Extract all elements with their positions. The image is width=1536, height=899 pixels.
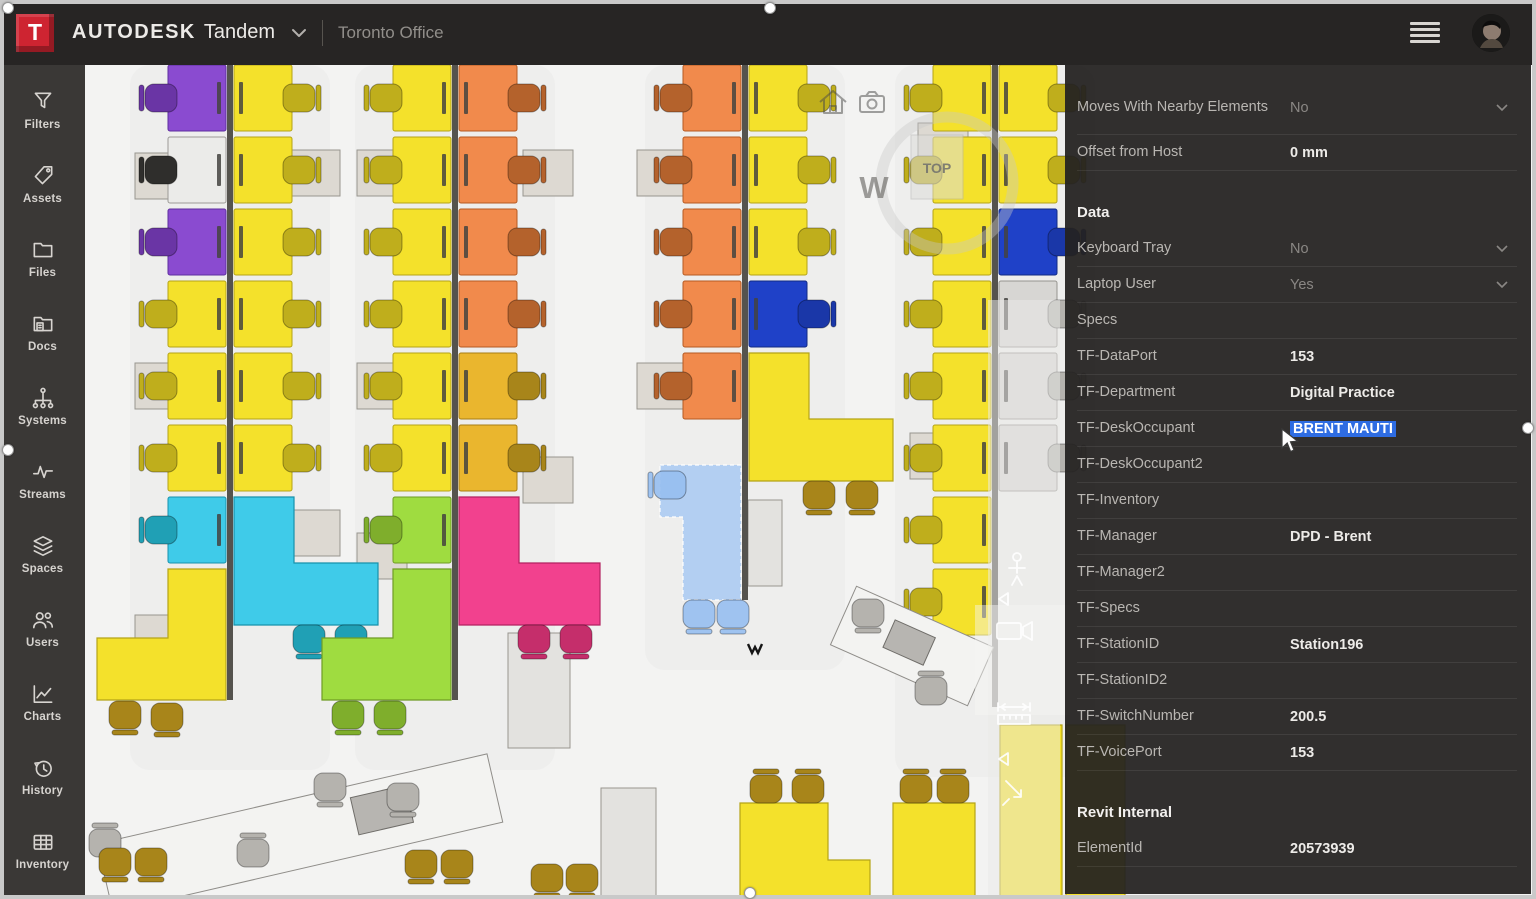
- sidebar-item-label: Docs: [28, 341, 57, 353]
- property-label: Specs: [1077, 312, 1277, 329]
- sidebar-item-spaces[interactable]: Spaces: [0, 517, 85, 591]
- property-value[interactable]: BRENT MAUTI: [1277, 421, 1517, 437]
- funnel-icon: [30, 89, 56, 115]
- property-row: Moves With Nearby ElementsNo: [1077, 81, 1517, 135]
- chair: [846, 481, 878, 515]
- resize-handle[interactable]: [2, 2, 14, 14]
- chair: [852, 599, 884, 633]
- chair: [792, 769, 824, 803]
- property-value[interactable]: 153: [1277, 349, 1517, 365]
- chair: [237, 833, 269, 867]
- sidebar-item-filters[interactable]: Filters: [0, 73, 85, 147]
- property-label: TF-DeskOccupant: [1077, 420, 1277, 437]
- chair: [109, 701, 141, 735]
- chair: [717, 600, 749, 634]
- facility-name[interactable]: Toronto Office: [338, 23, 444, 43]
- streams-icon: [30, 459, 56, 485]
- cabinet: [601, 788, 656, 899]
- section-header: Revit Internal: [1077, 797, 1517, 827]
- property-value[interactable]: No: [1277, 100, 1487, 116]
- sidebar-item-label: Users: [26, 637, 59, 649]
- property-label: TF-Department: [1077, 384, 1277, 401]
- history-icon: [30, 755, 56, 781]
- avatar[interactable]: [1472, 14, 1510, 52]
- property-label: TF-Manager2: [1077, 564, 1277, 581]
- chair: [387, 783, 419, 817]
- property-row: Keyboard TrayNo: [1077, 231, 1517, 267]
- folder-icon: [30, 237, 56, 263]
- sidebar-item-users[interactable]: Users: [0, 591, 85, 665]
- chair: [518, 625, 550, 659]
- property-row: TF-Specs: [1077, 591, 1517, 627]
- property-value[interactable]: 20573939: [1277, 841, 1517, 857]
- resize-handle[interactable]: [744, 887, 756, 899]
- property-label: Offset from Host: [1077, 144, 1277, 161]
- sidebar-item-label: Systems: [18, 415, 67, 427]
- chair: [937, 769, 969, 803]
- property-row: TF-DepartmentDigital Practice: [1077, 375, 1517, 411]
- app-window: T AUTODESK Tandem Toronto Office Filters…: [0, 0, 1536, 899]
- chevron-down-icon[interactable]: [1487, 104, 1517, 112]
- chevron-down-icon[interactable]: [291, 28, 307, 38]
- chevron-down-icon[interactable]: [1487, 281, 1517, 289]
- resize-handle[interactable]: [2, 444, 14, 456]
- property-label: TF-Specs: [1077, 600, 1277, 617]
- sidebar: FiltersAssetsFilesDocsSystemsStreamsSpac…: [0, 65, 85, 899]
- sidebar-item-label: Streams: [19, 489, 66, 501]
- sidebar-item-systems[interactable]: Systems: [0, 369, 85, 443]
- brand-tandem: Tandem: [204, 21, 275, 44]
- tag-icon: [30, 163, 56, 189]
- property-label: ElementId: [1077, 840, 1277, 857]
- chair: [314, 773, 346, 807]
- sidebar-item-label: Filters: [25, 119, 61, 131]
- cabinet: [748, 500, 782, 586]
- sidebar-item-label: Assets: [23, 193, 62, 205]
- property-label: TF-StationID: [1077, 636, 1277, 653]
- chair: [566, 864, 598, 898]
- divider: [322, 20, 323, 46]
- desk-divider: [452, 65, 458, 700]
- property-row: TF-VoicePort153: [1077, 735, 1517, 771]
- chair: [374, 701, 406, 735]
- chair: [99, 848, 131, 882]
- sidebar-item-inventory[interactable]: Inventory: [0, 813, 85, 887]
- property-value[interactable]: 200.5: [1277, 709, 1517, 725]
- property-label: TF-Manager: [1077, 528, 1277, 545]
- property-value[interactable]: Yes: [1277, 277, 1487, 293]
- sidebar-item-assets[interactable]: Assets: [0, 147, 85, 221]
- sidebar-item-files[interactable]: Files: [0, 221, 85, 295]
- menu-icon[interactable]: [1410, 22, 1440, 43]
- property-label: TF-DataPort: [1077, 348, 1277, 365]
- docs-icon: [30, 311, 56, 337]
- property-value[interactable]: Digital Practice: [1277, 385, 1517, 401]
- property-row: TF-DeskOccupant2: [1077, 447, 1517, 483]
- chair: [683, 600, 715, 634]
- chair: [293, 625, 325, 659]
- property-row: TF-Manager2: [1077, 555, 1517, 591]
- property-label: TF-DeskOccupant2: [1077, 456, 1277, 473]
- charts-icon: [30, 681, 56, 707]
- properties-panel: Moves With Nearby ElementsNoOffset from …: [1065, 65, 1531, 894]
- property-row: ElementId20573939: [1077, 831, 1517, 867]
- systems-icon: [30, 385, 56, 411]
- resize-handle[interactable]: [1522, 422, 1534, 434]
- property-row: Laptop UserYes: [1077, 267, 1517, 303]
- desk[interactable]: [1000, 725, 1062, 899]
- property-label: TF-StationID2: [1077, 672, 1277, 689]
- sidebar-item-label: History: [22, 785, 63, 797]
- sidebar-item-docs[interactable]: Docs: [0, 295, 85, 369]
- property-row: Specs: [1077, 303, 1517, 339]
- section-header: Data: [1077, 197, 1517, 227]
- property-label: TF-VoicePort: [1077, 744, 1277, 761]
- property-row: Offset from Host0 mm: [1077, 135, 1517, 171]
- property-value[interactable]: 0 mm: [1277, 145, 1517, 161]
- chair: [405, 850, 437, 884]
- tandem-logo[interactable]: T: [16, 14, 54, 52]
- desk-divider: [992, 65, 998, 707]
- sidebar-item-label: Spaces: [22, 563, 63, 575]
- property-row: TF-ManagerDPD - Brent: [1077, 519, 1517, 555]
- chair: [151, 703, 183, 737]
- property-label: Laptop User: [1077, 276, 1277, 293]
- property-row: TF-DeskOccupantBRENT MAUTI: [1077, 411, 1517, 447]
- resize-handle[interactable]: [764, 2, 776, 14]
- users-icon: [30, 607, 56, 633]
- cabinet: [290, 510, 340, 556]
- desk-divider: [227, 65, 233, 700]
- chair: [531, 864, 563, 898]
- property-row: TF-StationID2: [1077, 663, 1517, 699]
- property-row: TF-DataPort153: [1077, 339, 1517, 375]
- property-value[interactable]: DPD - Brent: [1277, 529, 1517, 545]
- chair: [441, 850, 473, 884]
- brand: AUTODESK Tandem: [72, 21, 275, 44]
- desk-divider: [742, 65, 748, 600]
- property-row: TF-Inventory: [1077, 483, 1517, 519]
- sidebar-item-charts[interactable]: Charts: [0, 665, 85, 739]
- property-label: TF-Inventory: [1077, 492, 1277, 509]
- property-label: Moves With Nearby Elements: [1077, 99, 1277, 116]
- chevron-down-icon[interactable]: [1487, 245, 1517, 253]
- property-value[interactable]: 153: [1277, 745, 1517, 761]
- property-value[interactable]: No: [1277, 241, 1487, 257]
- property-label: TF-SwitchNumber: [1077, 708, 1277, 725]
- selected-text[interactable]: BRENT MAUTI: [1290, 421, 1396, 437]
- property-row: TF-SwitchNumber200.5: [1077, 699, 1517, 735]
- sidebar-item-history[interactable]: History: [0, 739, 85, 813]
- sidebar-item-label: Inventory: [16, 859, 70, 871]
- chair: [750, 769, 782, 803]
- property-value[interactable]: Station196: [1277, 637, 1517, 653]
- property-label: Keyboard Tray: [1077, 240, 1277, 257]
- chair: [332, 701, 364, 735]
- chair: [560, 625, 592, 659]
- sidebar-item-label: Charts: [24, 711, 62, 723]
- property-row: TF-StationIDStation196: [1077, 627, 1517, 663]
- chair: [915, 671, 947, 705]
- chair: [803, 481, 835, 515]
- spaces-icon: [30, 533, 56, 559]
- sidebar-item-streams[interactable]: Streams: [0, 443, 85, 517]
- chair: [135, 848, 167, 882]
- sidebar-item-label: Files: [29, 267, 56, 279]
- inventory-icon: [30, 829, 56, 855]
- chair: [900, 769, 932, 803]
- brand-autodesk: AUTODESK: [72, 21, 196, 44]
